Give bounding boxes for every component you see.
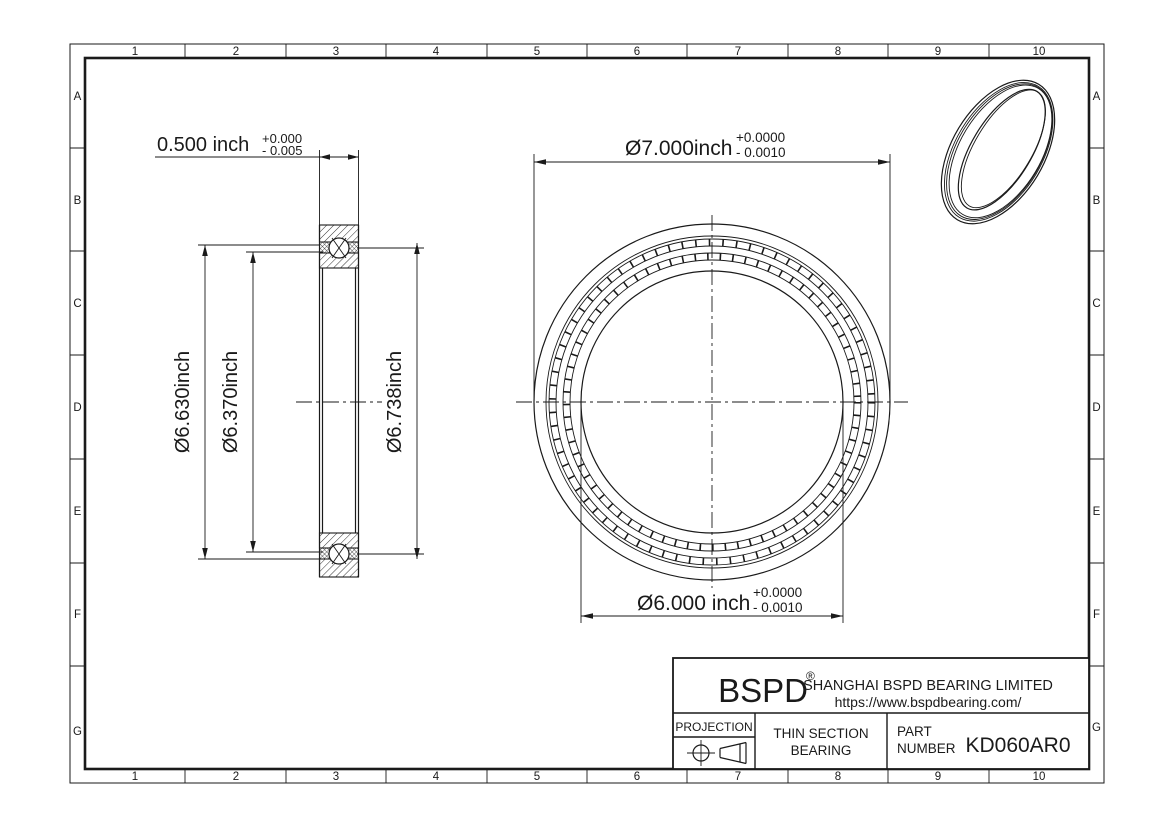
grid-label: 3 xyxy=(333,771,339,783)
grid-label: D xyxy=(1092,402,1100,414)
dim-width-tol-minus: - 0.005 xyxy=(262,143,302,158)
projection-label: PROJECTION xyxy=(675,720,752,734)
grid-label: A xyxy=(74,91,82,103)
grid-label: 6 xyxy=(634,46,640,58)
grid-label: B xyxy=(74,195,82,207)
dim-od-value: Ø7.000inch xyxy=(625,137,732,160)
grid-label: E xyxy=(74,506,82,518)
isometric-ring-sketch xyxy=(918,61,1078,244)
dim-od-tol-plus: +0.0000 xyxy=(736,130,785,145)
part-label-line2: NUMBER xyxy=(897,741,956,756)
grid-label: F xyxy=(1093,609,1100,621)
grid-label: 6 xyxy=(634,771,640,783)
product-type-line2: BEARING xyxy=(791,743,852,758)
company-name: SHANGHAI BSPD BEARING LIMITED xyxy=(803,678,1053,694)
grid-label: B xyxy=(1093,195,1101,207)
dim-bore-tol-plus: +0.0000 xyxy=(753,585,802,600)
ball-top xyxy=(329,238,349,258)
grid-row-labels-right: A B C D E F G xyxy=(1092,91,1101,734)
grid-label: 9 xyxy=(935,46,941,58)
drawing-sheet: 1 2 3 4 5 6 7 8 9 10 1 2 3 4 5 6 7 8 9 1… xyxy=(0,0,1170,827)
dim-raceway-value: Ø6.738inch xyxy=(384,351,406,453)
grid-label: 3 xyxy=(333,46,339,58)
grid-label: 9 xyxy=(935,771,941,783)
grid-label: A xyxy=(1093,91,1101,103)
grid-label: 2 xyxy=(233,771,239,783)
technical-drawing-canvas: 1 2 3 4 5 6 7 8 9 10 1 2 3 4 5 6 7 8 9 1… xyxy=(0,0,1170,827)
dim-width-value: 0.500 inch xyxy=(157,134,249,156)
grid-label: 5 xyxy=(534,46,540,58)
grid-label: E xyxy=(1093,506,1101,518)
brand-logo: BSPD xyxy=(718,672,808,709)
dim-outer-land-value: Ø6.630inch xyxy=(172,351,194,453)
dim-inner-land-value: Ø6.370inch xyxy=(220,351,242,453)
dim-bore-tol-minus: - 0.0010 xyxy=(753,600,803,615)
grid-label: F xyxy=(74,609,81,621)
grid-label: D xyxy=(73,402,81,414)
part-number-value: KD060AR0 xyxy=(965,734,1070,757)
grid-label: G xyxy=(73,726,82,738)
grid-label: 2 xyxy=(233,46,239,58)
dim-bore-value: Ø6.000 inch xyxy=(637,592,750,615)
ball-bottom xyxy=(329,544,349,564)
grid-label: 8 xyxy=(835,46,841,58)
grid-label: 4 xyxy=(433,771,440,783)
title-block: BSPD ® SHANGHAI BSPD BEARING LIMITED htt… xyxy=(673,658,1089,769)
dim-raceway: Ø6.738inch xyxy=(357,243,424,559)
grid-label: 5 xyxy=(534,771,540,783)
dim-width: 0.500 inch +0.000 - 0.005 xyxy=(155,131,359,160)
grid-column-labels-bottom: 1 2 3 4 5 6 7 8 9 10 xyxy=(132,771,1046,783)
grid-label: 1 xyxy=(132,771,138,783)
company-website: https://www.bspdbearing.com/ xyxy=(835,694,1022,710)
dim-od-tol-minus: - 0.0010 xyxy=(736,145,786,160)
grid-label: 4 xyxy=(433,46,440,58)
grid-label: C xyxy=(73,298,81,310)
grid-label: 7 xyxy=(735,46,741,58)
part-label-line1: PART xyxy=(897,724,932,739)
front-view: Ø7.000inch +0.0000 - 0.0010 Ø6.000 inch … xyxy=(516,130,908,623)
product-type-line1: THIN SECTION xyxy=(773,726,868,741)
grid-label: 10 xyxy=(1033,46,1046,58)
side-section-view: 0.500 inch +0.000 - 0.005 Ø6.630inch Ø6.… xyxy=(155,131,424,577)
grid-label: 10 xyxy=(1033,771,1046,783)
grid-label: 8 xyxy=(835,771,841,783)
grid-column-labels-top: 1 2 3 4 5 6 7 8 9 10 xyxy=(132,46,1046,58)
grid-label: 1 xyxy=(132,46,138,58)
grid-label: 7 xyxy=(735,771,741,783)
grid-label: G xyxy=(1092,722,1101,734)
grid-row-labels-left: A B C D E F G xyxy=(73,91,82,738)
grid-label: C xyxy=(1092,298,1100,310)
